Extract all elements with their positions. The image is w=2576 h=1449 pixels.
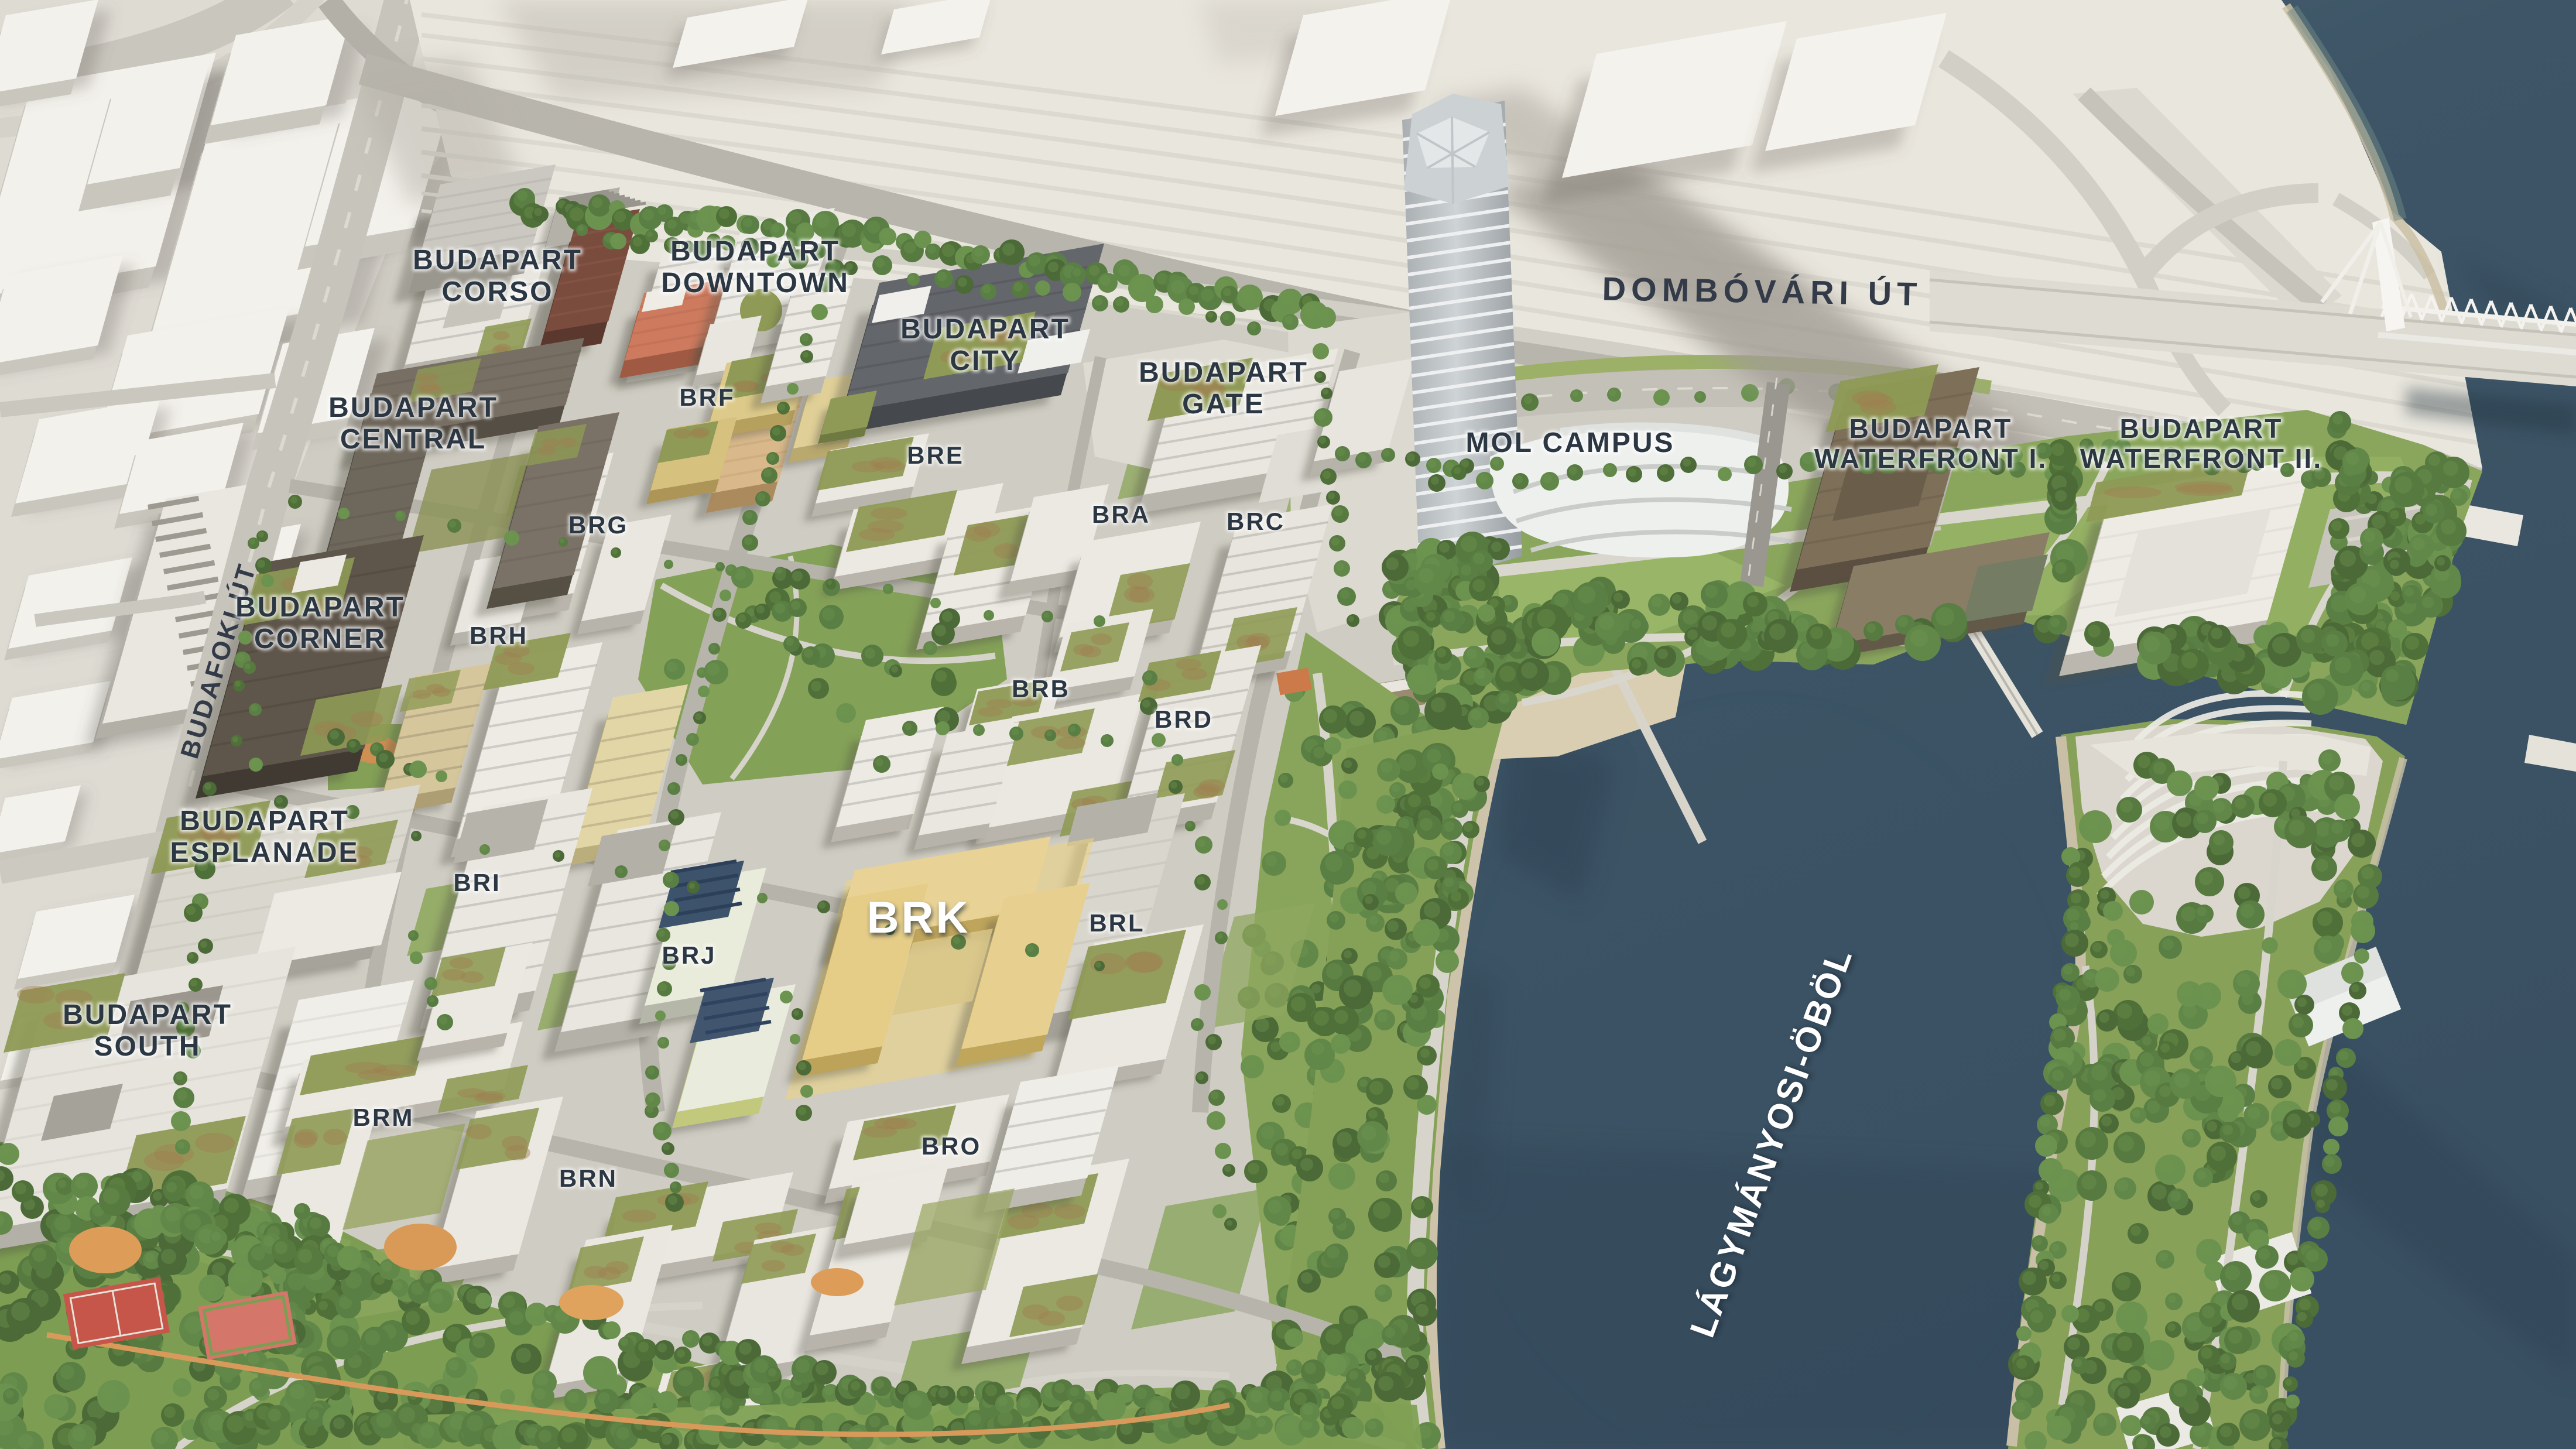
svg-text:BRM: BRM [353, 1104, 415, 1131]
svg-text:BUDAPART: BUDAPART [180, 806, 350, 837]
svg-text:BRB: BRB [1012, 675, 1070, 703]
svg-text:DOWNTOWN: DOWNTOWN [661, 268, 849, 299]
svg-text:BRN: BRN [559, 1164, 618, 1192]
svg-text:BRK: BRK [867, 893, 971, 943]
svg-text:BRF: BRF [679, 383, 735, 411]
svg-text:DOMBÓVÁRI ÚT: DOMBÓVÁRI ÚT [1602, 270, 1923, 313]
svg-text:BUDAPART: BUDAPART [328, 392, 498, 423]
svg-text:BRH: BRH [470, 622, 528, 649]
svg-text:BUDAPART: BUDAPART [900, 314, 1070, 345]
svg-text:CITY: CITY [950, 345, 1020, 376]
svg-text:CENTRAL: CENTRAL [340, 424, 487, 455]
svg-text:CORSO: CORSO [441, 276, 553, 307]
svg-text:BRE: BRE [907, 441, 964, 469]
svg-text:BUDAPART: BUDAPART [1849, 413, 2013, 444]
svg-text:BUDAPART: BUDAPART [2120, 413, 2283, 444]
svg-text:BRD: BRD [1155, 705, 1213, 733]
svg-text:GATE: GATE [1182, 389, 1265, 420]
svg-text:BRJ: BRJ [662, 941, 716, 969]
svg-text:CORNER: CORNER [254, 624, 386, 655]
svg-text:SOUTH: SOUTH [94, 1031, 201, 1062]
svg-text:BRA: BRA [1092, 501, 1150, 528]
svg-text:WATERFRONT I.: WATERFRONT I. [1814, 443, 2047, 474]
svg-text:ESPLANADE: ESPLANADE [170, 837, 359, 868]
svg-text:BRI: BRI [453, 869, 501, 896]
svg-text:BRO: BRO [922, 1132, 981, 1160]
svg-text:BUDAPART: BUDAPART [1139, 357, 1308, 388]
svg-text:MOL CAMPUS: MOL CAMPUS [1465, 427, 1674, 458]
svg-text:BRL: BRL [1089, 909, 1145, 937]
svg-text:BUDAPART: BUDAPART [413, 245, 583, 276]
svg-text:BUDAPART: BUDAPART [670, 236, 840, 267]
svg-text:BRG: BRG [568, 511, 628, 539]
svg-text:BUDAPART: BUDAPART [235, 592, 405, 623]
svg-text:BRC: BRC [1227, 508, 1285, 535]
svg-text:WATERFRONT II.: WATERFRONT II. [2080, 443, 2322, 474]
svg-text:BUDAPART: BUDAPART [63, 999, 232, 1030]
